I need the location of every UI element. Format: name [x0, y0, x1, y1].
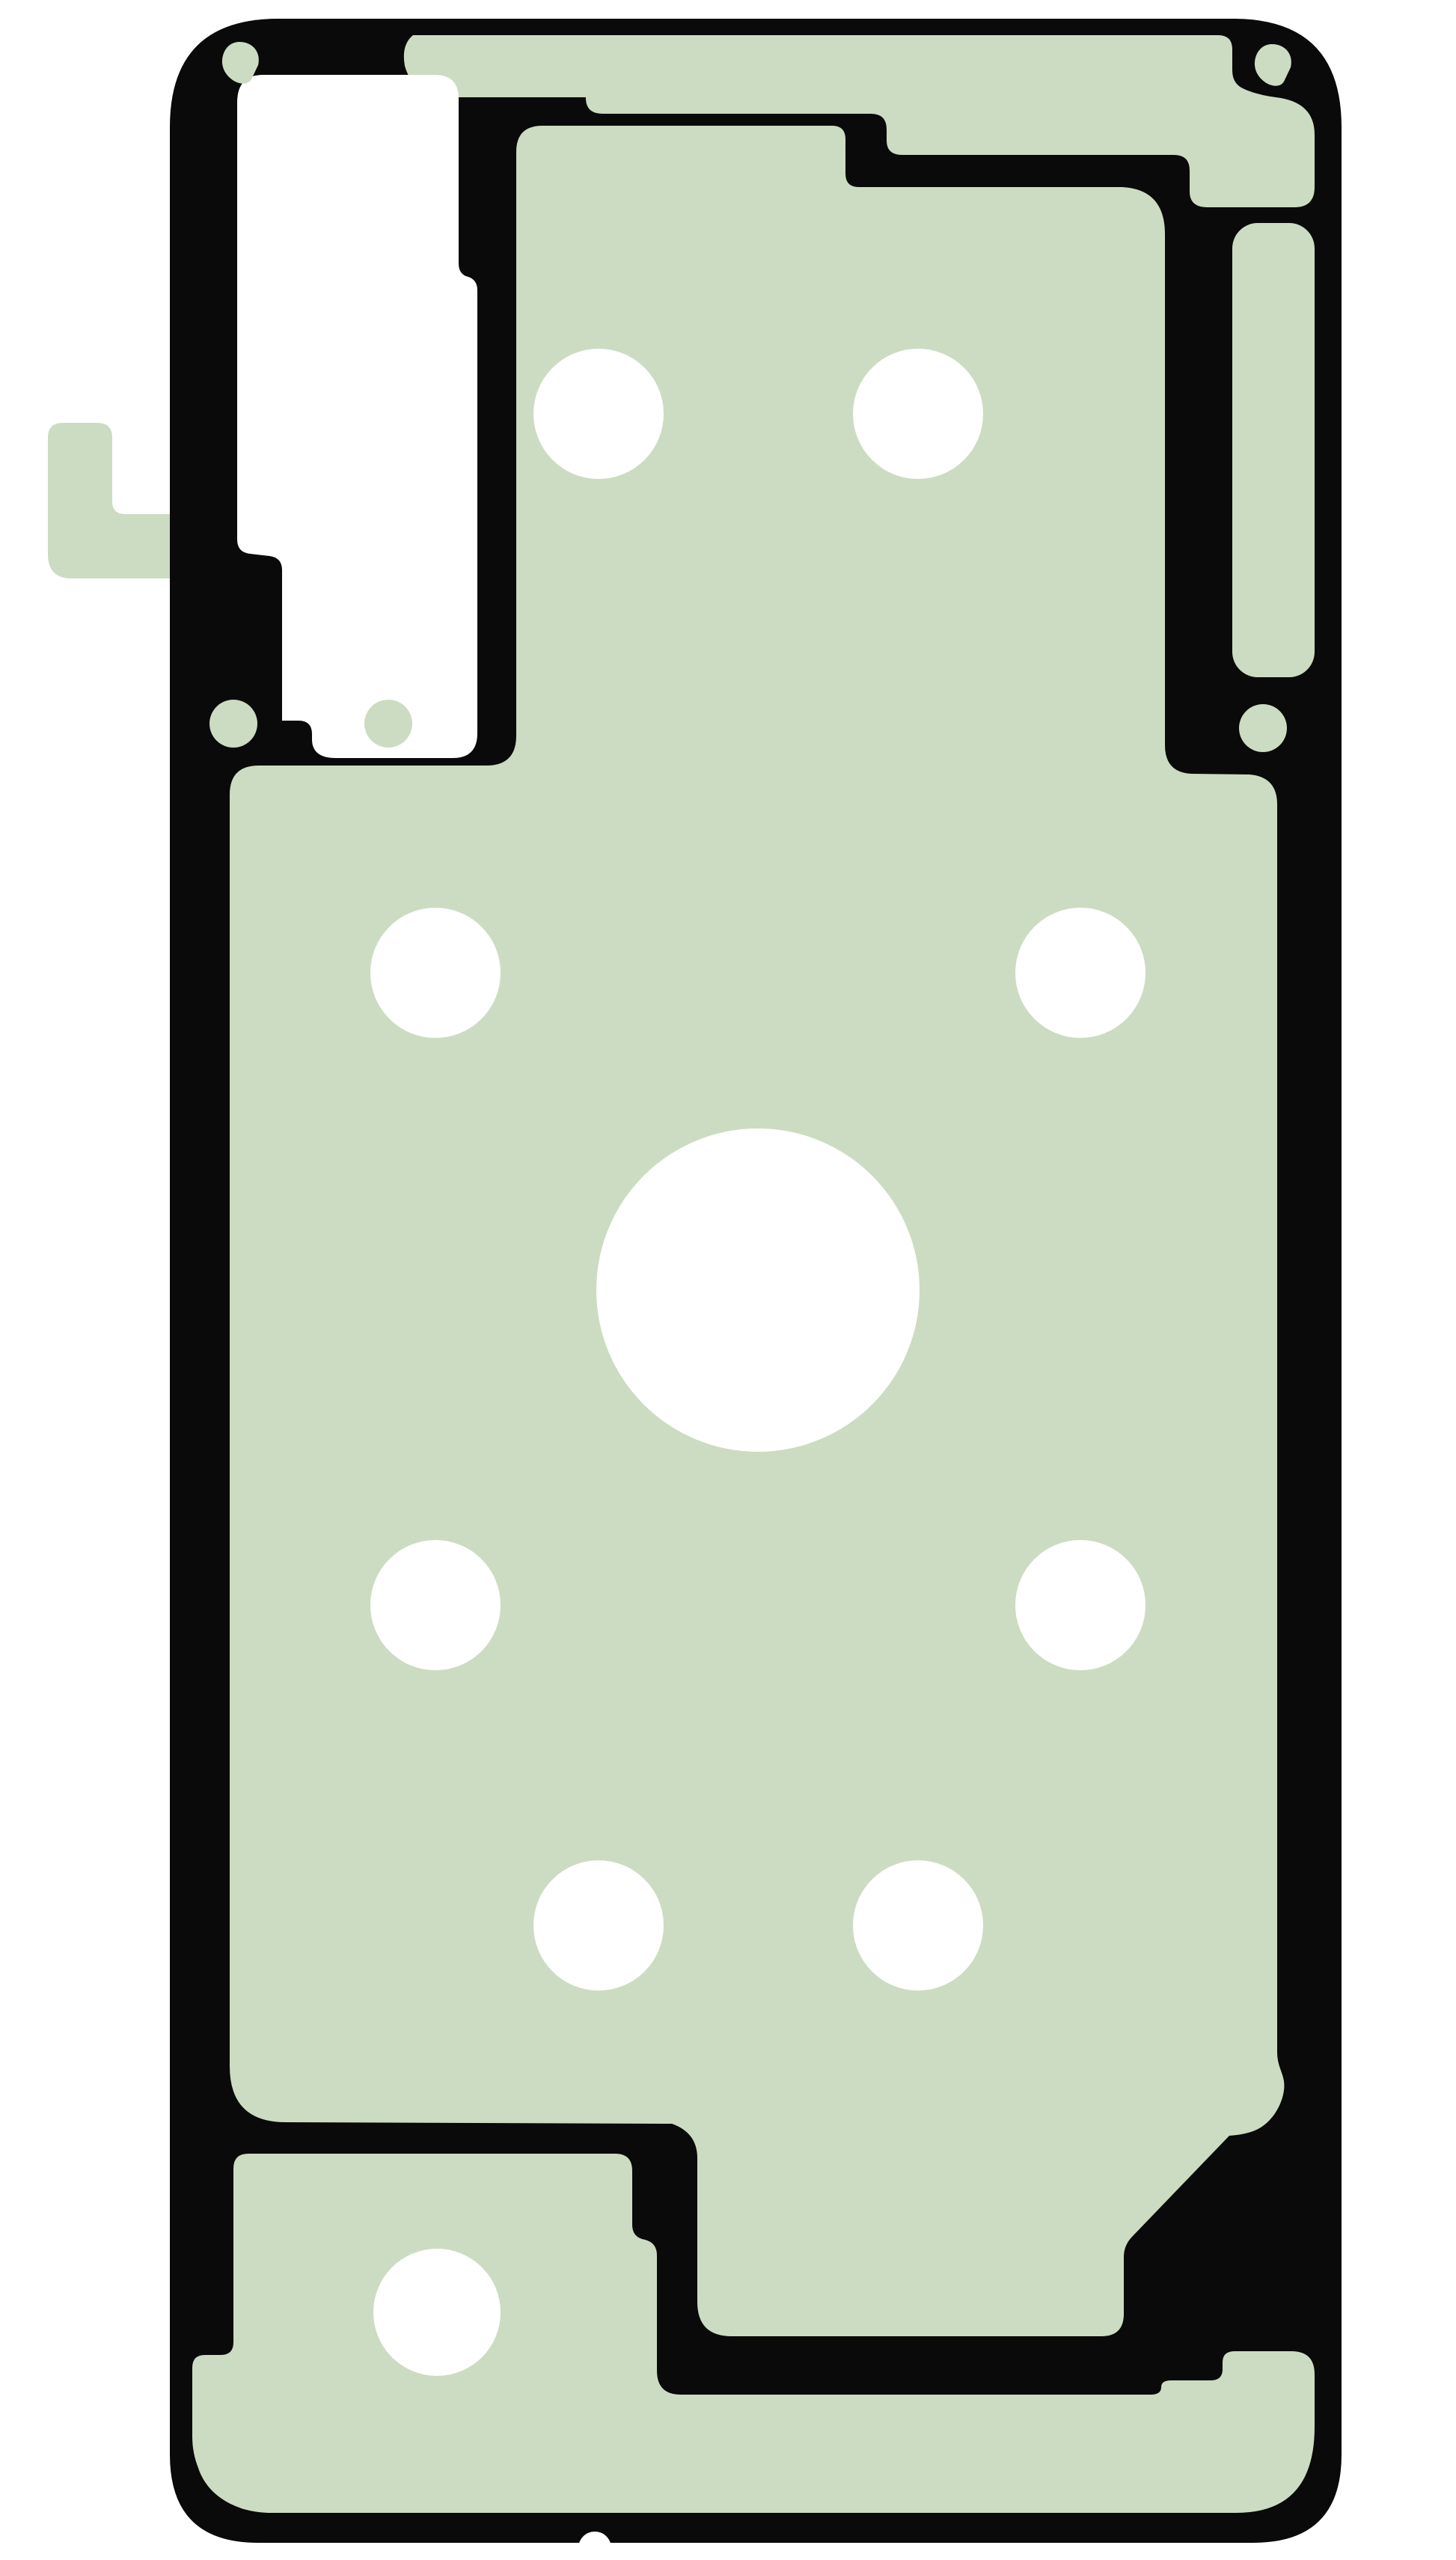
- dot-left-inner: [209, 700, 257, 748]
- hole-lower-right: [1015, 1540, 1145, 1670]
- hole-mid-right: [1015, 908, 1145, 1038]
- adhesive-sticker-illustration: [0, 0, 1456, 2560]
- hole-bottom-right: [853, 1860, 983, 1991]
- hole-bottom-panel: [373, 2249, 501, 2376]
- side-tab: [48, 423, 174, 578]
- hole-top-left: [533, 349, 664, 479]
- hole-bottom-left: [533, 1860, 664, 1991]
- right-strip: [1232, 223, 1315, 677]
- hole-mid-left: [370, 908, 501, 1038]
- dot-right: [1239, 704, 1287, 752]
- hole-top-right: [853, 349, 983, 479]
- hole-center-large: [596, 1128, 920, 1452]
- hole-lower-left: [370, 1540, 501, 1670]
- adhesive-sticker-drawing: [0, 0, 1456, 2560]
- dot-left-outer: [364, 700, 412, 748]
